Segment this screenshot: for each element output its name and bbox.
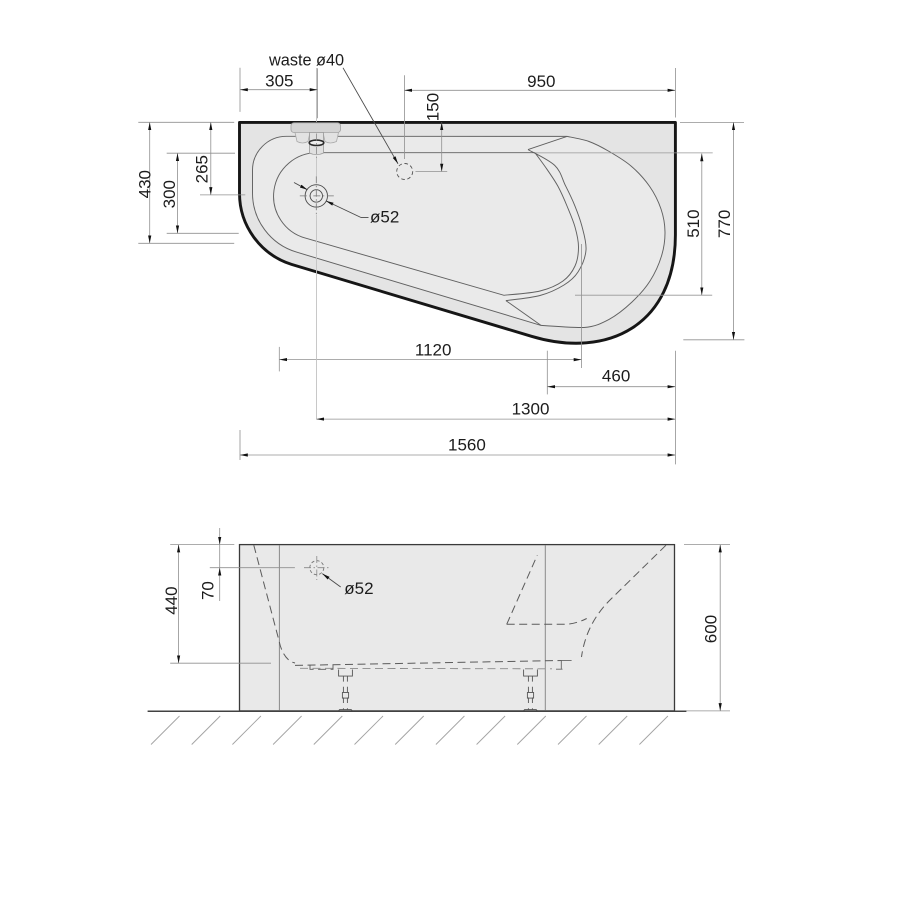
svg-text:600: 600	[702, 615, 721, 643]
svg-text:1120: 1120	[415, 341, 452, 360]
svg-text:770: 770	[715, 210, 734, 238]
svg-text:ø52: ø52	[370, 208, 399, 227]
svg-text:305: 305	[265, 72, 293, 91]
svg-text:265: 265	[193, 155, 212, 183]
svg-text:510: 510	[684, 209, 703, 237]
svg-text:1300: 1300	[512, 400, 550, 419]
svg-text:430: 430	[136, 170, 155, 198]
svg-text:150: 150	[423, 93, 442, 121]
svg-text:waste ø40: waste ø40	[268, 51, 344, 69]
svg-text:950: 950	[527, 72, 555, 91]
svg-text:460: 460	[602, 366, 630, 385]
svg-text:ø52: ø52	[344, 579, 373, 598]
svg-text:1560: 1560	[448, 436, 486, 455]
svg-text:300: 300	[160, 180, 179, 208]
svg-text:440: 440	[162, 586, 181, 614]
svg-text:70: 70	[199, 581, 218, 600]
